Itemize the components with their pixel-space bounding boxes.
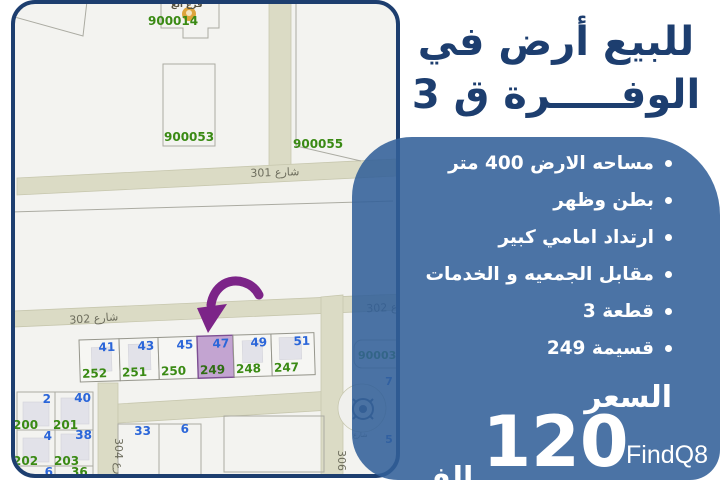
parcel-number-900055: 900055 xyxy=(293,137,343,151)
feature-text: قطعة 3 xyxy=(583,301,654,322)
bullet-icon xyxy=(665,345,672,352)
ad-title: للبيع أرض في الوفـــــرة ق 3 xyxy=(402,16,710,122)
feature-text: مساحه الارض 400 متر xyxy=(448,153,654,174)
street-301-road xyxy=(17,159,396,195)
feature-item: قطعة 3 xyxy=(372,299,672,324)
plot-number: 250 xyxy=(161,364,186,379)
map-image: فرع الع 900014 900053 900055 900035 شارع… xyxy=(11,0,400,478)
plot-number: 248 xyxy=(236,361,261,376)
plot-number: 49 xyxy=(250,335,267,350)
plot-number: 36 xyxy=(71,465,88,474)
feature-item: مساحه الارض 400 متر xyxy=(372,151,672,176)
plot-number: 43 xyxy=(137,339,154,354)
price-value: 120 xyxy=(458,407,653,477)
feature-text: قسيمة 249 xyxy=(547,338,654,359)
ad-page: فرع الع 900014 900053 900055 900035 شارع… xyxy=(0,0,720,480)
bullet-icon xyxy=(665,197,672,204)
plot-number: 45 xyxy=(176,337,193,352)
watermark-findq8: FindQ8 xyxy=(626,441,708,470)
plot-number: 40 xyxy=(74,391,91,405)
plot-number: 247 xyxy=(274,360,299,375)
plot-number-249: 249 xyxy=(200,362,225,377)
plot-number: 51 xyxy=(293,334,310,349)
bullet-icon xyxy=(665,271,672,278)
plot-number: 6 xyxy=(45,465,53,474)
plot-number: 6 xyxy=(181,422,189,436)
feature-item: بطن وظهر xyxy=(372,188,672,213)
street-306-label: شارع 306 xyxy=(335,450,348,474)
road-vertical-top xyxy=(269,4,291,176)
feature-text: بطن وظهر xyxy=(553,190,654,211)
feature-item: قسيمة 249 xyxy=(372,336,672,361)
plot-number: 33 xyxy=(134,424,151,438)
feature-text: ارتداد امامي كبير xyxy=(498,227,654,248)
bullet-icon xyxy=(665,234,672,241)
street-301-label: شارع 301 xyxy=(250,165,299,180)
bullet-icon xyxy=(665,160,672,167)
feature-item: ارتداد امامي كبير xyxy=(372,225,672,250)
plot-number: 41 xyxy=(98,340,115,355)
feature-item: مقابل الجمعيه و الخدمات xyxy=(372,262,672,287)
feature-list: مساحه الارض 400 متر بطن وظهر ارتداد امام… xyxy=(372,151,672,373)
street-302-label: شارع 302 xyxy=(69,310,119,326)
plot-number: 201 xyxy=(53,418,78,432)
plot-number: 4 xyxy=(44,429,52,443)
plot-number: 202 xyxy=(15,454,38,468)
street-304-label: شارع 304 xyxy=(112,438,125,474)
bullet-icon xyxy=(665,308,672,315)
branch-label: فرع الع xyxy=(171,4,203,10)
plot-number: 200 xyxy=(15,418,38,432)
plot-number: 251 xyxy=(122,365,147,380)
price-unit: الف xyxy=(416,461,473,480)
plot-number: 2 xyxy=(43,392,51,406)
parcel-number-900014: 900014 xyxy=(148,14,198,28)
parcel-number-900053: 900053 xyxy=(164,130,214,144)
plot-number: 252 xyxy=(82,366,107,381)
feature-text: مقابل الجمعيه و الخدمات xyxy=(425,264,654,285)
ad-title-line2: الوفـــــرة ق 3 xyxy=(402,69,710,122)
ad-title-line1: للبيع أرض في xyxy=(402,16,710,69)
map-canvas: فرع الع 900014 900053 900055 900035 شارع… xyxy=(15,4,396,474)
plot-row: 41 43 45 47 49 51 252 251 250 249 248 24… xyxy=(79,333,315,382)
plot-number: 47 xyxy=(212,336,229,351)
